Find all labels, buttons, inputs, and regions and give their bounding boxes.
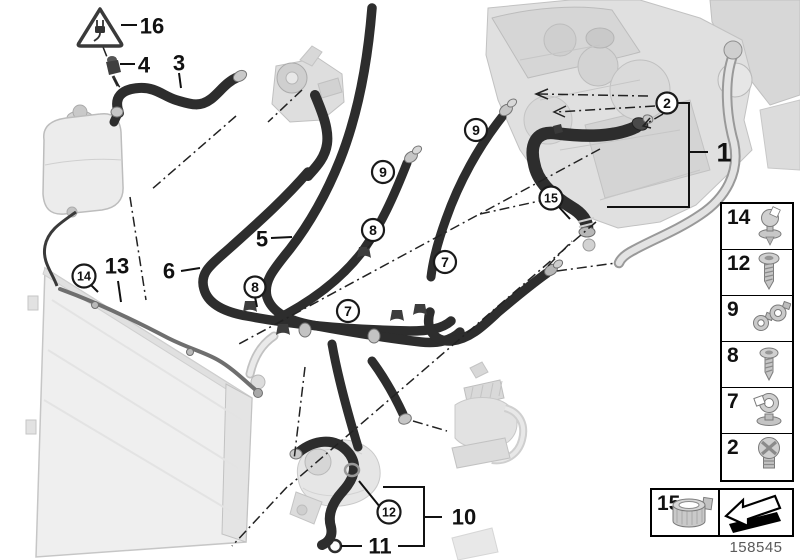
callout-circle-8b: 8	[245, 277, 266, 298]
svg-text:2: 2	[663, 95, 671, 111]
legend-row-8: 8	[722, 342, 792, 388]
callout-circle-9b: 9	[465, 119, 487, 141]
legend-row-12: 12	[722, 250, 792, 296]
callout-circle-15: 15	[540, 187, 563, 210]
callout-11: 11	[368, 534, 391, 559]
svg-text:8: 8	[369, 222, 377, 238]
callout-1: 1	[716, 137, 731, 167]
callout-16: 16	[140, 14, 164, 39]
fasteners-legend: 14 12 9 8	[720, 202, 794, 482]
pipe-fitting	[254, 389, 263, 398]
svg-text:9: 9	[379, 164, 387, 180]
svg-text:14: 14	[77, 269, 91, 283]
callout-3: 3	[173, 51, 185, 76]
temperature-sensor	[106, 56, 121, 86]
legend-row-14: 14	[722, 204, 792, 250]
legend-row-7: 7	[722, 388, 792, 434]
hose-5	[266, 8, 460, 343]
callout-4: 4	[138, 53, 151, 78]
callout-circle-14: 14	[73, 265, 96, 288]
svg-text:15: 15	[544, 191, 558, 205]
svg-text:7: 7	[344, 303, 352, 319]
svg-text:12: 12	[382, 505, 396, 519]
legend-bottom-row: 15	[650, 488, 794, 537]
callout-6: 6	[163, 259, 175, 284]
engine-block-ghost	[486, 0, 800, 228]
callout-13: 13	[105, 254, 129, 279]
legend-row-15: 15	[652, 490, 720, 535]
diagram-part-number: 158545	[714, 539, 798, 556]
hose-spring-clamps-icon	[747, 297, 791, 339]
callout-5: 5	[256, 227, 268, 252]
callout-10: 10	[452, 505, 476, 530]
legend-row-9: 9	[722, 296, 792, 342]
callout-circle-12: 12	[378, 501, 401, 524]
svg-text:8: 8	[251, 279, 259, 295]
pipe-fitting	[187, 349, 194, 356]
svg-text:9: 9	[472, 122, 480, 138]
legend-continue-cell	[720, 490, 792, 535]
svg-text:7: 7	[441, 254, 449, 270]
hose-3	[117, 77, 238, 113]
callout-circle-9a: 9	[372, 161, 394, 183]
hose-u-right	[429, 273, 547, 341]
callout-circle-2: 2	[657, 93, 678, 114]
self-tapping-screw-icon	[747, 343, 791, 385]
callout-circle-8a: 8	[362, 219, 384, 241]
callout-circle-7b: 7	[337, 300, 359, 322]
water-pump-ghost	[272, 46, 344, 122]
continue-arrow-icon	[720, 490, 790, 535]
cooling-hoses-diagram: 16 4 3 1 5 6 13 10 11 2 9 9 8 8 7 7 15 1…	[0, 0, 800, 560]
hose-drop-left	[332, 344, 358, 447]
cross-head-screw-icon	[747, 435, 791, 477]
turbo-pump-ghost	[452, 362, 523, 560]
hose-drop-right	[372, 361, 403, 414]
expanding-rivet-clip-icon	[747, 205, 791, 247]
band-clamp-icon	[661, 491, 717, 535]
legend-row-2: 2	[722, 434, 792, 480]
pipe-fitting	[92, 302, 99, 309]
hose-clamp-holder-icon	[747, 389, 791, 431]
parts-diagram-page: 16 4 3 1 5 6 13 10 11 2 9 9 8 8 7 7 15 1…	[0, 0, 800, 560]
pan-head-screw-icon	[747, 251, 791, 293]
callout-circle-7a: 7	[434, 251, 456, 273]
o-ring	[329, 540, 341, 552]
plug-warning-triangle-icon	[78, 9, 121, 46]
